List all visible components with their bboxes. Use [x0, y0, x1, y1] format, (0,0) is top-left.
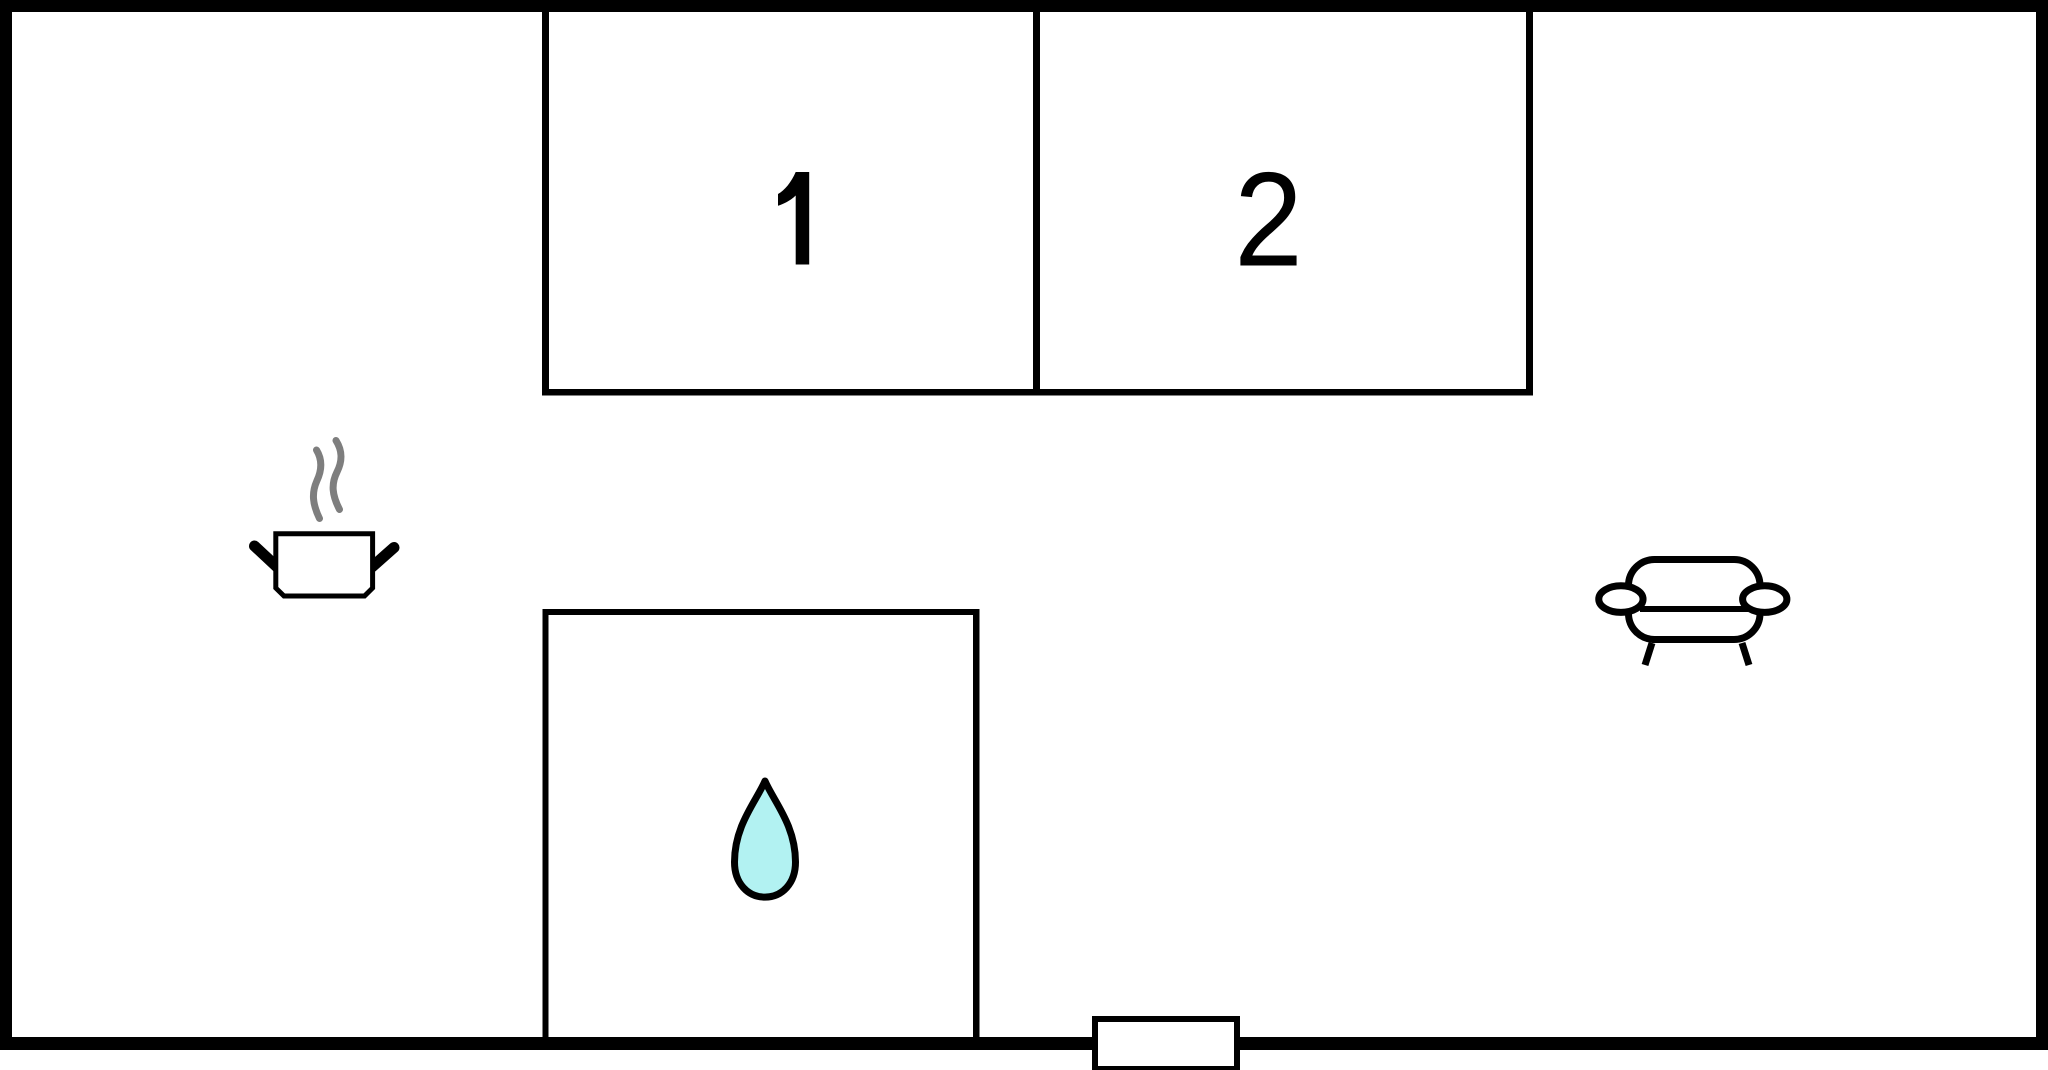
svg-text:2: 2	[1234, 145, 1303, 295]
